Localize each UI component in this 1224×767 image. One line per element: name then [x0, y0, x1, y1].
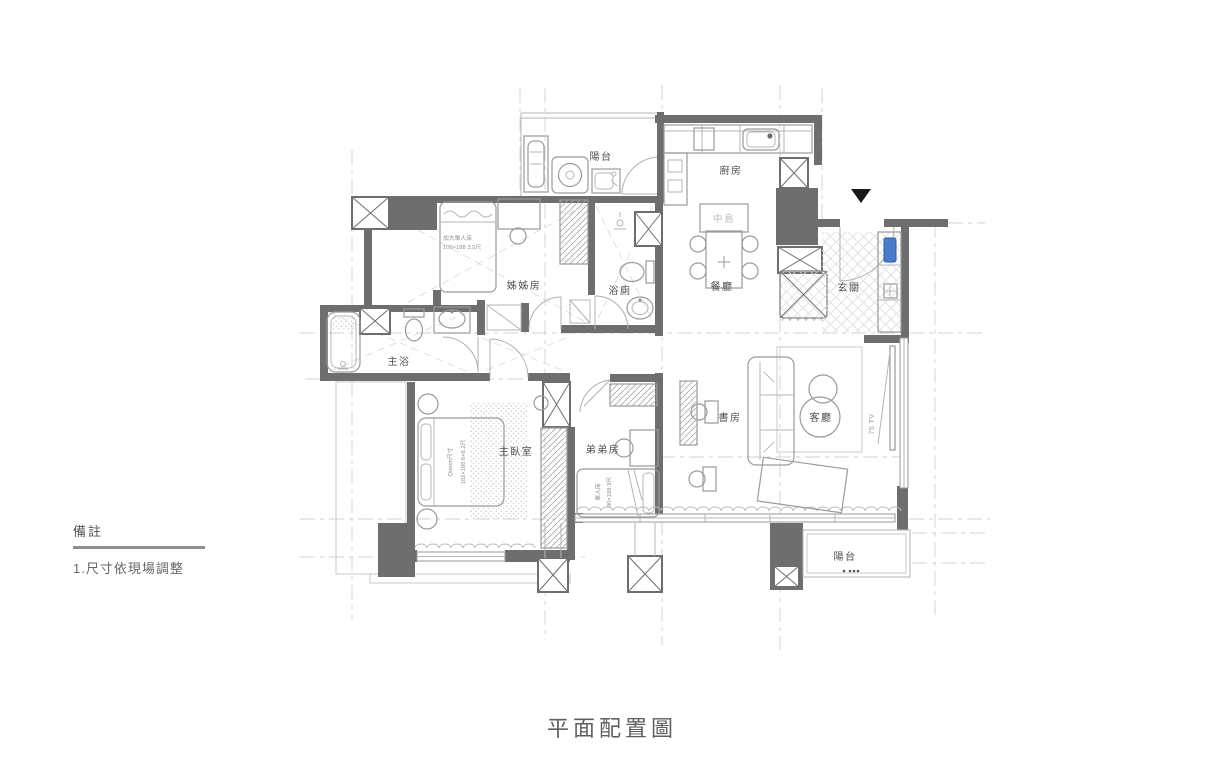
notes-heading: 備註 — [73, 521, 223, 540]
drain-dots — [843, 570, 860, 573]
balcony-top: 陽台 — [521, 113, 661, 198]
shower-faucet-icon — [614, 212, 626, 229]
master-bed-name: Queen尺寸 — [446, 447, 454, 476]
living-room-label: 客廳 — [810, 411, 833, 424]
brother-room: 單人床 90×188 3尺 弟弟房 — [577, 380, 659, 517]
master-bath-door — [443, 337, 478, 372]
tv-label: 75 TV — [869, 413, 876, 434]
notes-block: 備註 1.尺寸依現場調整 — [73, 521, 223, 577]
column — [543, 382, 570, 427]
brother-wardrobe — [610, 384, 657, 406]
bedroom-rug — [470, 403, 528, 519]
kitchen-sink — [743, 129, 779, 150]
page-title: 平面配置圖 — [0, 711, 1224, 743]
brother-bed-name: 單人床 — [594, 483, 602, 501]
balcony-door — [622, 157, 660, 194]
column — [628, 523, 662, 592]
brother-desk — [615, 430, 658, 466]
study-label: 書房 — [719, 411, 742, 424]
master-bedroom-label: 主臥室 — [499, 445, 534, 458]
pendant-light-icon — [718, 256, 730, 268]
master-wardrobe — [541, 428, 567, 548]
bedside-stool — [418, 394, 438, 414]
floor-plan-canvas: 陽台 — [0, 0, 1224, 767]
laundry-sink — [592, 169, 620, 193]
dining-label: 餐廳 — [711, 280, 734, 293]
balcony-bottom: 陽台 — [803, 530, 910, 577]
sister-room-label: 姊姊房 — [507, 279, 542, 292]
brother-room-label: 弟弟房 — [586, 443, 621, 456]
bathtub — [327, 312, 360, 372]
notes-divider — [73, 546, 205, 549]
corner-pier — [378, 523, 415, 577]
window — [417, 552, 505, 561]
brother-bed-size: 90×188 3尺 — [606, 477, 613, 507]
blue-accent-item — [884, 238, 896, 262]
column — [774, 566, 799, 587]
bathroom-label: 浴廁 — [609, 284, 632, 297]
kitchen-counter-side — [664, 153, 687, 205]
dining-chair — [690, 236, 706, 252]
sister-wardrobe — [560, 200, 588, 264]
entrance: 玄關 — [822, 189, 901, 332]
sister-bed-name: 加大單人床 — [443, 234, 472, 242]
study: 書房 — [680, 381, 742, 491]
balcony-top-label: 陽台 — [590, 150, 613, 163]
pipe-shaft — [776, 188, 818, 245]
toilet — [404, 309, 424, 341]
tub-headrest — [333, 318, 354, 330]
bathroom-door — [595, 296, 628, 329]
sofa — [748, 357, 794, 465]
bookshelf — [680, 381, 697, 445]
dining-chair — [742, 236, 758, 252]
living-room: 75 TV 客廳 — [748, 346, 895, 513]
column — [360, 308, 390, 334]
dining-chair — [690, 263, 706, 279]
living-rug — [777, 347, 862, 452]
sister-desk — [498, 199, 540, 244]
sister-bed-size: 106×188 3.5尺 — [443, 244, 481, 251]
balcony-bottom-label: 陽台 — [834, 550, 857, 563]
toilet — [620, 261, 654, 283]
floor-plan-page: 陽台 — [0, 0, 1224, 767]
dining-chair — [742, 263, 758, 279]
notes-item: 1.尺寸依現場調整 — [73, 558, 223, 577]
lounge-bench — [757, 457, 847, 512]
entry-label: 玄關 — [838, 281, 861, 294]
column — [780, 158, 808, 188]
kitchen-label: 廚房 — [720, 164, 743, 177]
sister-bed: 加大單人床 106×188 3.5尺 — [440, 202, 496, 292]
brother-door — [580, 380, 610, 412]
column — [635, 212, 662, 246]
tv-unit: 75 TV — [869, 346, 895, 450]
dining: 中島 餐廳 — [690, 204, 758, 293]
washing-machine — [552, 157, 588, 193]
column — [778, 247, 822, 273]
master-bath: 主浴 — [327, 307, 478, 372]
desk-chair — [510, 228, 526, 244]
master-bath-label: 主浴 — [388, 356, 411, 368]
window — [575, 514, 895, 522]
bathroom-sink — [627, 297, 653, 319]
kitchen-counter — [664, 125, 812, 153]
window — [900, 338, 908, 488]
column — [352, 197, 389, 229]
entry-direction-marker — [851, 189, 871, 203]
pantry-cabinet — [780, 271, 827, 321]
master-bedroom-door — [490, 339, 528, 377]
master-bed-size: 182×188 6×6.2尺 — [460, 439, 467, 484]
island-label: 中島 — [713, 213, 735, 225]
